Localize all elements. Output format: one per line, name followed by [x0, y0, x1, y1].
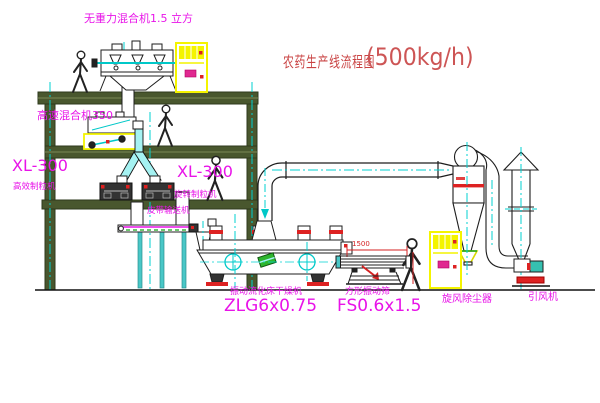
control-cabinet-2	[430, 232, 461, 288]
belt-conveyor	[118, 225, 196, 288]
label-granulator-left-name: 高效制粒机	[13, 183, 56, 192]
label-belt-conveyor: 皮带输送机	[147, 207, 190, 216]
label-granulator-mid-model: XL-300	[177, 164, 233, 180]
label-granulator-left-model: XL-300	[12, 158, 68, 174]
granulator-discharge-chute-left	[131, 202, 143, 225]
label-gravity-mixer: 无重力混合机1.5 立方	[84, 13, 193, 24]
granulator-left	[100, 176, 132, 200]
label-fan: 引风机	[528, 293, 558, 303]
exhaust-duct	[258, 161, 453, 221]
induced-draft-fan	[512, 259, 550, 286]
label-cyclone: 旋风除尘器	[442, 295, 492, 305]
label-dryer-model: ZLG6x0.75	[224, 298, 317, 315]
dimension-screen-length: 1500	[352, 241, 370, 248]
drawing-title-capacity: (500kg/h)	[366, 43, 474, 71]
drawing-title: 农药生产线流程图	[283, 51, 375, 72]
control-cabinet-1	[176, 43, 207, 92]
drawing-canvas: 无重力混合机1.5 立方 高速混合机350 XL-300 高效制粒机 XL-30…	[0, 0, 600, 403]
worker-1	[73, 51, 87, 92]
worker-2	[158, 105, 172, 146]
label-granulator-mid-name: 旋转制粒机	[174, 191, 217, 200]
label-high-speed-mixer: 高速混合机350	[37, 110, 113, 121]
fluid-bed-dryer	[197, 214, 352, 288]
granulator-right	[142, 176, 174, 200]
label-screen-model: FS0.6x1.5	[337, 298, 421, 315]
